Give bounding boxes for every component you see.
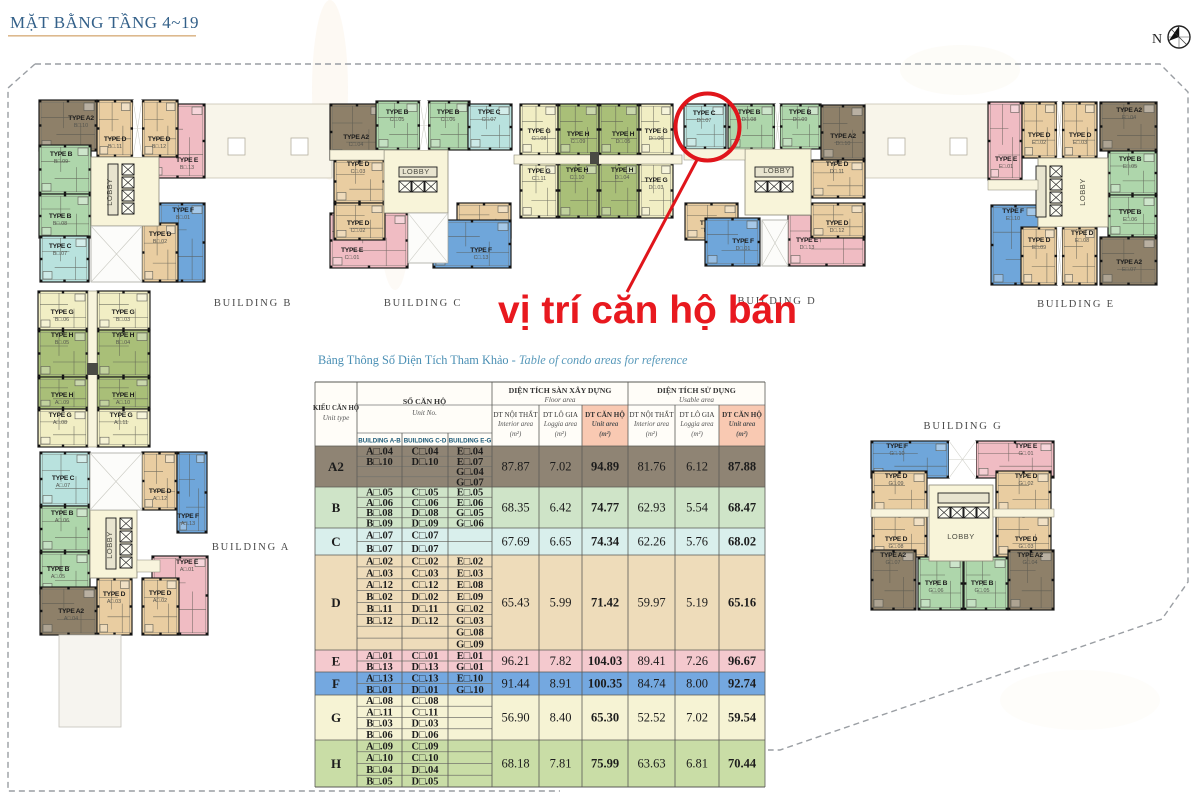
svg-text:7.02: 7.02 <box>686 711 708 725</box>
svg-text:A□.07: A□.07 <box>366 530 393 541</box>
svg-text:65.16: 65.16 <box>728 596 756 610</box>
svg-text:52.52: 52.52 <box>637 711 665 725</box>
svg-text:C□.07: C□.07 <box>482 117 497 123</box>
svg-text:B□.13: B□.13 <box>366 662 392 673</box>
svg-text:A□.12: A□.12 <box>153 496 167 502</box>
svg-text:LOBBY: LOBBY <box>105 531 114 559</box>
svg-text:96.21: 96.21 <box>501 654 529 668</box>
svg-text:E□.01: E□.01 <box>457 651 483 662</box>
svg-text:BUILDING G: BUILDING G <box>924 421 1003 432</box>
svg-text:LOBBY: LOBBY <box>402 167 430 176</box>
svg-text:N: N <box>1152 32 1162 47</box>
svg-text:TYPE B: TYPE B <box>386 109 409 116</box>
svg-text:E□.04: E□.04 <box>1122 115 1136 121</box>
svg-text:E□.07: E□.07 <box>1122 267 1136 273</box>
svg-text:TYPE B: TYPE B <box>1119 156 1142 163</box>
svg-text:TYPE G: TYPE G <box>528 128 551 135</box>
svg-text:C□.07: C□.07 <box>411 530 438 541</box>
svg-text:TYPE B: TYPE B <box>50 151 73 158</box>
svg-text:TYPE D: TYPE D <box>148 136 171 143</box>
svg-text:75.99: 75.99 <box>591 757 619 771</box>
svg-text:Usable area: Usable area <box>679 396 714 404</box>
svg-text:B□.02: B□.02 <box>153 239 167 245</box>
svg-text:Loggia area: Loggia area <box>543 421 578 428</box>
svg-text:TYPE B: TYPE B <box>971 580 994 587</box>
svg-text:A□.06: A□.06 <box>55 518 69 524</box>
svg-text:94.89: 94.89 <box>591 460 619 474</box>
svg-text:DT NỘI THẤT: DT NỘI THẤT <box>493 411 538 419</box>
svg-text:TYPE F: TYPE F <box>177 513 199 520</box>
svg-text:C□.06: C□.06 <box>441 117 456 123</box>
svg-text:(m²): (m²) <box>510 431 522 438</box>
svg-text:(m²): (m²) <box>646 431 658 438</box>
svg-text:TYPE F: TYPE F <box>732 238 754 245</box>
svg-text:D□.06: D□.06 <box>649 136 664 142</box>
svg-text:Interior area: Interior area <box>497 421 534 428</box>
svg-text:TYPE H: TYPE H <box>112 392 135 399</box>
svg-text:TYPE D: TYPE D <box>1071 230 1094 237</box>
svg-text:TYPE A2: TYPE A2 <box>1116 107 1142 114</box>
svg-text:A□.02: A□.02 <box>153 598 167 604</box>
svg-text:BUILDING E-G: BUILDING E-G <box>449 438 492 445</box>
svg-text:D□.13: D□.13 <box>800 245 815 251</box>
svg-text:TYPE B: TYPE B <box>49 213 72 220</box>
svg-text:TYPE D: TYPE D <box>885 536 908 543</box>
svg-text:89.41: 89.41 <box>637 654 665 668</box>
svg-text:C□.11: C□.11 <box>532 176 546 182</box>
svg-text:G□.03: G□.03 <box>1019 544 1034 550</box>
svg-text:8.40: 8.40 <box>550 711 572 725</box>
svg-text:Bảng Thông Số Diện Tích Tham K: Bảng Thông Số Diện Tích Tham Khảo - Tabl… <box>318 353 688 367</box>
svg-text:74.34: 74.34 <box>591 535 620 549</box>
svg-text:TYPE B: TYPE B <box>51 510 74 517</box>
svg-text:SỐ CĂN HỘ: SỐ CĂN HỘ <box>403 396 446 406</box>
svg-text:TYPE A2: TYPE A2 <box>58 608 84 615</box>
svg-text:E□.02: E□.02 <box>1032 140 1046 146</box>
svg-text:68.02: 68.02 <box>728 535 756 549</box>
svg-text:LOBBY: LOBBY <box>1078 178 1087 206</box>
svg-text:D□.06: D□.06 <box>411 730 438 741</box>
svg-text:D□.12: D□.12 <box>830 228 845 234</box>
svg-text:TYPE B: TYPE B <box>437 109 460 116</box>
svg-text:TYPE C: TYPE C <box>52 475 75 482</box>
svg-text:TYPE G: TYPE G <box>51 309 74 316</box>
svg-text:G□.06: G□.06 <box>929 588 944 594</box>
svg-text:81.76: 81.76 <box>637 460 665 474</box>
svg-text:A□.08: A□.08 <box>366 696 393 707</box>
svg-text:B□.01: B□.01 <box>176 215 190 221</box>
svg-text:C□.10: C□.10 <box>411 753 438 764</box>
svg-text:TYPE H: TYPE H <box>612 131 635 138</box>
svg-text:D□.11: D□.11 <box>830 169 844 175</box>
svg-text:5.54: 5.54 <box>686 501 709 515</box>
svg-text:TYPE D: TYPE D <box>1069 132 1092 139</box>
svg-text:TYPE B: TYPE B <box>738 109 761 116</box>
svg-text:100.35: 100.35 <box>588 677 622 691</box>
svg-text:vị trí căn hộ bán: vị trí căn hộ bán <box>498 289 797 332</box>
svg-text:TYPE D: TYPE D <box>826 161 849 168</box>
svg-text:B□.05: B□.05 <box>366 777 392 788</box>
svg-text:E□.08: E□.08 <box>1075 238 1089 244</box>
svg-text:5.19: 5.19 <box>686 596 708 610</box>
svg-text:A□.05: A□.05 <box>51 574 65 580</box>
svg-text:TYPE D: TYPE D <box>149 488 172 495</box>
svg-text:Unit No.: Unit No. <box>412 409 437 417</box>
svg-text:E□.05: E□.05 <box>1123 164 1137 170</box>
svg-text:C□.12: C□.12 <box>411 580 438 591</box>
svg-text:68.35: 68.35 <box>501 501 529 515</box>
svg-text:DT CĂN HỘ: DT CĂN HỘ <box>722 411 762 419</box>
svg-text:TYPE H: TYPE H <box>51 392 74 399</box>
svg-text:G□.08: G□.08 <box>889 544 904 550</box>
svg-text:BUILDING B: BUILDING B <box>214 298 292 309</box>
svg-text:TYPE G: TYPE G <box>645 177 668 184</box>
svg-text:TYPE D: TYPE D <box>1015 536 1038 543</box>
svg-text:C□.03: C□.03 <box>351 169 366 175</box>
svg-text:TYPE D: TYPE D <box>1015 473 1038 480</box>
svg-text:D□.03: D□.03 <box>411 719 438 730</box>
svg-text:TYPE E: TYPE E <box>995 156 1018 163</box>
svg-text:TYPE B: TYPE B <box>47 566 70 573</box>
svg-text:G□.09: G□.09 <box>889 481 904 487</box>
svg-text:E□.03: E□.03 <box>1073 140 1087 146</box>
svg-text:A□.03: A□.03 <box>366 568 393 579</box>
svg-text:C□.09: C□.09 <box>411 741 438 752</box>
svg-text:5.76: 5.76 <box>686 535 708 549</box>
svg-text:A□.01: A□.01 <box>180 567 194 573</box>
svg-text:B□.12: B□.12 <box>366 616 392 627</box>
svg-text:A□.13: A□.13 <box>181 521 195 527</box>
svg-text:E□.08: E□.08 <box>457 580 483 591</box>
svg-text:A□.02: A□.02 <box>366 556 393 567</box>
svg-text:DT NỘI THẤT: DT NỘI THẤT <box>629 411 674 419</box>
svg-text:74.77: 74.77 <box>591 501 619 515</box>
svg-text:TYPE D: TYPE D <box>347 220 370 227</box>
svg-text:BUILDING C: BUILDING C <box>384 298 462 309</box>
svg-text:LOBBY: LOBBY <box>947 532 975 541</box>
svg-text:BUILDING E: BUILDING E <box>1037 299 1115 310</box>
svg-text:TYPE D: TYPE D <box>885 473 908 480</box>
svg-text:104.03: 104.03 <box>588 654 622 668</box>
svg-text:B□.08: B□.08 <box>53 221 67 227</box>
svg-text:62.93: 62.93 <box>637 501 665 515</box>
svg-text:7.26: 7.26 <box>686 654 708 668</box>
svg-text:Unit area: Unit area <box>729 421 756 428</box>
svg-text:59.97: 59.97 <box>637 596 665 610</box>
svg-text:G□.07: G□.07 <box>886 560 901 566</box>
svg-text:TYPE H: TYPE H <box>567 131 590 138</box>
svg-text:(m²): (m²) <box>736 431 748 438</box>
svg-text:B: B <box>332 500 341 515</box>
svg-text:C□.03: C□.03 <box>411 568 438 579</box>
svg-text:TYPE F: TYPE F <box>1002 208 1024 215</box>
svg-text:C□.04: C□.04 <box>349 142 364 148</box>
svg-text:87.87: 87.87 <box>501 460 529 474</box>
svg-text:A□.09: A□.09 <box>55 400 69 406</box>
svg-text:TYPE D: TYPE D <box>149 231 172 238</box>
svg-text:G□.10: G□.10 <box>456 685 484 696</box>
svg-text:TYPE E: TYPE E <box>341 247 364 254</box>
svg-text:A□.01: A□.01 <box>366 651 393 662</box>
svg-text:67.69: 67.69 <box>501 535 529 549</box>
svg-text:TYPE A2: TYPE A2 <box>830 133 856 140</box>
svg-text:C□.09: C□.09 <box>571 139 586 145</box>
svg-text:DT CĂN HỘ: DT CĂN HỘ <box>585 411 625 419</box>
svg-text:D□.05: D□.05 <box>411 777 438 788</box>
svg-text:92.74: 92.74 <box>728 677 757 691</box>
svg-text:A□.10: A□.10 <box>366 753 393 764</box>
svg-text:G□.05: G□.05 <box>975 588 990 594</box>
svg-text:A□.11: A□.11 <box>366 707 392 718</box>
svg-text:65.43: 65.43 <box>501 596 529 610</box>
svg-text:D□.02: D□.02 <box>411 592 438 603</box>
svg-text:A□.04: A□.04 <box>64 616 78 622</box>
svg-text:C□.10: C□.10 <box>570 175 585 181</box>
svg-text:TYPE E: TYPE E <box>176 559 199 566</box>
svg-text:C□.13: C□.13 <box>411 673 438 684</box>
svg-text:A□.09: A□.09 <box>366 741 393 752</box>
svg-text:68.47: 68.47 <box>728 501 756 515</box>
svg-text:B□.11: B□.11 <box>367 604 393 615</box>
svg-text:B□.13: B□.13 <box>180 165 194 171</box>
svg-text:G□.03: G□.03 <box>456 616 484 627</box>
svg-text:(m²): (m²) <box>599 431 611 438</box>
svg-text:D□.04: D□.04 <box>615 175 630 181</box>
svg-text:D□.07: D□.07 <box>697 118 712 124</box>
svg-text:E□.10: E□.10 <box>457 673 483 684</box>
svg-text:TYPE D: TYPE D <box>103 591 126 598</box>
svg-text:DIỆN TÍCH SÀN XÂY DỰNG: DIỆN TÍCH SÀN XÂY DỰNG <box>509 385 612 395</box>
svg-text:91.44: 91.44 <box>501 677 530 691</box>
svg-text:C□.02: C□.02 <box>411 556 438 567</box>
svg-text:Unit type: Unit type <box>323 414 350 422</box>
svg-text:71.42: 71.42 <box>591 596 619 610</box>
svg-text:DIỆN TÍCH SỬ DỤNG: DIỆN TÍCH SỬ DỤNG <box>657 385 736 395</box>
svg-text:A□.10: A□.10 <box>116 400 130 406</box>
svg-text:63.63: 63.63 <box>637 757 665 771</box>
svg-text:D□.05: D□.05 <box>616 139 631 145</box>
svg-text:BUILDING A-B: BUILDING A-B <box>358 438 401 445</box>
svg-text:DT LÔ GIA: DT LÔ GIA <box>680 411 716 419</box>
svg-text:C□.01: C□.01 <box>411 651 438 662</box>
svg-text:E□.10: E□.10 <box>1006 216 1020 222</box>
svg-text:B□.07: B□.07 <box>53 251 67 257</box>
svg-text:8.00: 8.00 <box>686 677 708 691</box>
svg-text:6.65: 6.65 <box>550 535 572 549</box>
svg-text:G□.02: G□.02 <box>1019 481 1034 487</box>
svg-text:D□.03: D□.03 <box>649 185 664 191</box>
svg-text:E□.01: E□.01 <box>999 164 1013 170</box>
svg-text:TYPE F: TYPE F <box>172 207 194 214</box>
svg-text:TYPE H: TYPE H <box>51 332 74 339</box>
svg-text:B□.11: B□.11 <box>108 144 122 150</box>
svg-text:7.81: 7.81 <box>550 757 572 771</box>
svg-text:C: C <box>331 534 340 549</box>
svg-text:C□.01: C□.01 <box>345 255 360 261</box>
svg-text:B□.09: B□.09 <box>54 159 68 165</box>
svg-text:B□.01: B□.01 <box>366 685 392 696</box>
svg-text:G□.01: G□.01 <box>1019 451 1034 457</box>
svg-text:D□.11: D□.11 <box>412 604 438 615</box>
svg-text:TYPE H: TYPE H <box>566 167 589 174</box>
svg-text:E: E <box>332 654 341 669</box>
svg-text:E□.02: E□.02 <box>457 556 483 567</box>
svg-text:7.02: 7.02 <box>550 460 572 474</box>
svg-text:TYPE A2: TYPE A2 <box>68 115 94 122</box>
svg-text:5.99: 5.99 <box>550 596 572 610</box>
svg-text:TYPE C: TYPE C <box>693 110 716 117</box>
svg-text:B□.03: B□.03 <box>366 719 392 730</box>
svg-text:B□.07: B□.07 <box>366 544 392 555</box>
svg-text:C□.11: C□.11 <box>412 707 438 718</box>
svg-text:TYPE B: TYPE B <box>925 580 948 587</box>
svg-text:TYPE B: TYPE B <box>1119 209 1142 216</box>
svg-text:C□.02: C□.02 <box>351 228 366 234</box>
svg-text:G□.02: G□.02 <box>456 604 484 615</box>
svg-text:D□.01: D□.01 <box>736 246 751 252</box>
svg-text:6.81: 6.81 <box>686 757 708 771</box>
svg-text:G□.08: G□.08 <box>456 628 484 639</box>
svg-text:A□.07: A□.07 <box>56 483 70 489</box>
svg-text:TYPE F: TYPE F <box>886 443 908 450</box>
svg-text:7.82: 7.82 <box>550 654 572 668</box>
svg-text:59.54: 59.54 <box>728 711 757 725</box>
svg-text:TYPE A2: TYPE A2 <box>343 134 369 141</box>
svg-text:D□.12: D□.12 <box>411 616 438 627</box>
svg-text:G□.10: G□.10 <box>890 451 905 457</box>
svg-text:TYPE D: TYPE D <box>826 220 849 227</box>
svg-text:B□.10: B□.10 <box>74 123 88 129</box>
svg-text:E□.09: E□.09 <box>1032 245 1046 251</box>
svg-text:B□.05: B□.05 <box>55 340 69 346</box>
svg-text:TYPE H: TYPE H <box>611 167 634 174</box>
svg-text:TYPE A2: TYPE A2 <box>1116 259 1142 266</box>
svg-text:A□.08: A□.08 <box>53 420 67 426</box>
svg-text:G□.09: G□.09 <box>456 640 484 651</box>
svg-text:A□.03: A□.03 <box>107 599 121 605</box>
svg-text:D□.08: D□.08 <box>742 117 757 123</box>
svg-text:87.88: 87.88 <box>728 460 756 474</box>
svg-text:A□.13: A□.13 <box>366 673 393 684</box>
svg-text:65.30: 65.30 <box>591 711 619 725</box>
svg-text:TYPE G: TYPE G <box>645 128 668 135</box>
svg-text:8.91: 8.91 <box>550 677 572 691</box>
svg-text:DT LÔ GIA: DT LÔ GIA <box>543 411 579 419</box>
svg-text:A□.12: A□.12 <box>366 580 393 591</box>
svg-text:D□.01: D□.01 <box>411 685 438 696</box>
svg-text:B□.06: B□.06 <box>366 730 392 741</box>
svg-text:TYPE D: TYPE D <box>347 161 370 168</box>
svg-text:TYPE G: TYPE G <box>528 168 551 175</box>
svg-text:56.90: 56.90 <box>501 711 529 725</box>
svg-text:TYPE A2: TYPE A2 <box>1017 552 1043 559</box>
svg-text:D□.09: D□.09 <box>793 117 808 123</box>
svg-text:TYPE G: TYPE G <box>49 412 72 419</box>
svg-text:BUILDING A: BUILDING A <box>212 542 290 553</box>
svg-text:LOBBY: LOBBY <box>763 166 791 175</box>
svg-text:LOBBY: LOBBY <box>105 178 114 206</box>
svg-text:TYPE G: TYPE G <box>112 309 135 316</box>
svg-text:6.42: 6.42 <box>550 501 572 515</box>
svg-text:BUILDING C-D: BUILDING C-D <box>404 438 447 445</box>
svg-text:68.18: 68.18 <box>501 757 529 771</box>
svg-text:TYPE H: TYPE H <box>112 332 135 339</box>
svg-text:B□.02: B□.02 <box>366 592 392 603</box>
svg-text:D□.04: D□.04 <box>411 765 439 776</box>
svg-text:C□.13: C□.13 <box>474 255 489 261</box>
svg-text:B□.03: B□.03 <box>116 317 130 323</box>
svg-text:MẶT BẰNG TẦNG 4~19: MẶT BẰNG TẦNG 4~19 <box>10 13 199 32</box>
svg-text:F: F <box>332 676 340 691</box>
svg-text:6.12: 6.12 <box>686 460 708 474</box>
svg-text:H: H <box>331 756 341 771</box>
svg-text:70.44: 70.44 <box>728 757 757 771</box>
svg-text:TYPE D: TYPE D <box>1028 237 1051 244</box>
svg-text:Loggia area: Loggia area <box>679 421 714 428</box>
svg-text:TYPE F: TYPE F <box>470 247 492 254</box>
svg-text:E□.03: E□.03 <box>457 568 483 579</box>
svg-text:D: D <box>331 595 340 610</box>
svg-text:C□.08: C□.08 <box>411 696 438 707</box>
svg-text:84.74: 84.74 <box>637 677 666 691</box>
svg-text:G: G <box>331 710 341 725</box>
svg-text:TYPE B: TYPE B <box>789 109 812 116</box>
svg-text:(m²): (m²) <box>555 431 567 438</box>
svg-text:62.26: 62.26 <box>637 535 665 549</box>
svg-text:KIỂU CĂN HỘ: KIỂU CĂN HỘ <box>313 404 359 412</box>
svg-text:E□.06: E□.06 <box>1123 217 1137 223</box>
svg-text:TYPE C: TYPE C <box>478 109 501 116</box>
svg-text:TYPE A2: TYPE A2 <box>880 552 906 559</box>
svg-text:Interior area: Interior area <box>633 421 670 428</box>
svg-text:Unit area: Unit area <box>592 421 619 428</box>
svg-text:TYPE E: TYPE E <box>1015 443 1038 450</box>
svg-text:D□.07: D□.07 <box>411 544 438 555</box>
svg-text:TYPE D: TYPE D <box>149 590 172 597</box>
svg-text:A2: A2 <box>328 459 344 474</box>
svg-text:E□.09: E□.09 <box>457 592 483 603</box>
svg-text:B□.12: B□.12 <box>152 144 166 150</box>
svg-text:TYPE G: TYPE G <box>110 412 133 419</box>
svg-text:B□.06: B□.06 <box>55 317 69 323</box>
svg-text:D□.10: D□.10 <box>836 141 851 147</box>
svg-text:A□.11: A□.11 <box>114 420 128 426</box>
svg-text:(m²): (m²) <box>691 431 703 438</box>
svg-text:C□.08: C□.08 <box>532 136 547 142</box>
svg-text:B□.04: B□.04 <box>116 340 130 346</box>
svg-text:Floor area: Floor area <box>543 396 575 404</box>
svg-text:B□.04: B□.04 <box>366 765 393 776</box>
svg-text:TYPE D: TYPE D <box>104 136 127 143</box>
svg-text:TYPE E: TYPE E <box>176 157 199 164</box>
svg-text:D□.13: D□.13 <box>411 662 438 673</box>
svg-text:TYPE C: TYPE C <box>49 243 72 250</box>
svg-text:C□.05: C□.05 <box>390 117 405 123</box>
svg-text:96.67: 96.67 <box>728 654 756 668</box>
svg-text:TYPE D: TYPE D <box>1028 132 1051 139</box>
svg-text:G□.04: G□.04 <box>1023 560 1038 566</box>
svg-text:G□.01: G□.01 <box>456 662 484 673</box>
